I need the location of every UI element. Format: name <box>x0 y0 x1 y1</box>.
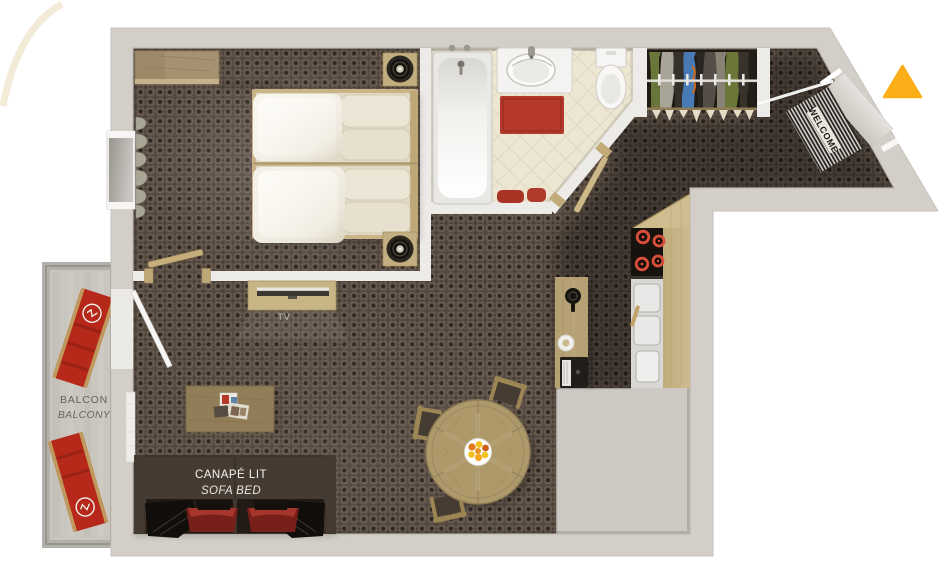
svg-text:CANAPÉ LIT: CANAPÉ LIT <box>195 468 267 481</box>
svg-text:BALCON: BALCON <box>60 394 108 406</box>
svg-text:SOFA BED: SOFA BED <box>201 485 261 497</box>
svg-text:BALCONY: BALCONY <box>58 409 111 421</box>
svg-text:TV: TV <box>277 312 290 322</box>
